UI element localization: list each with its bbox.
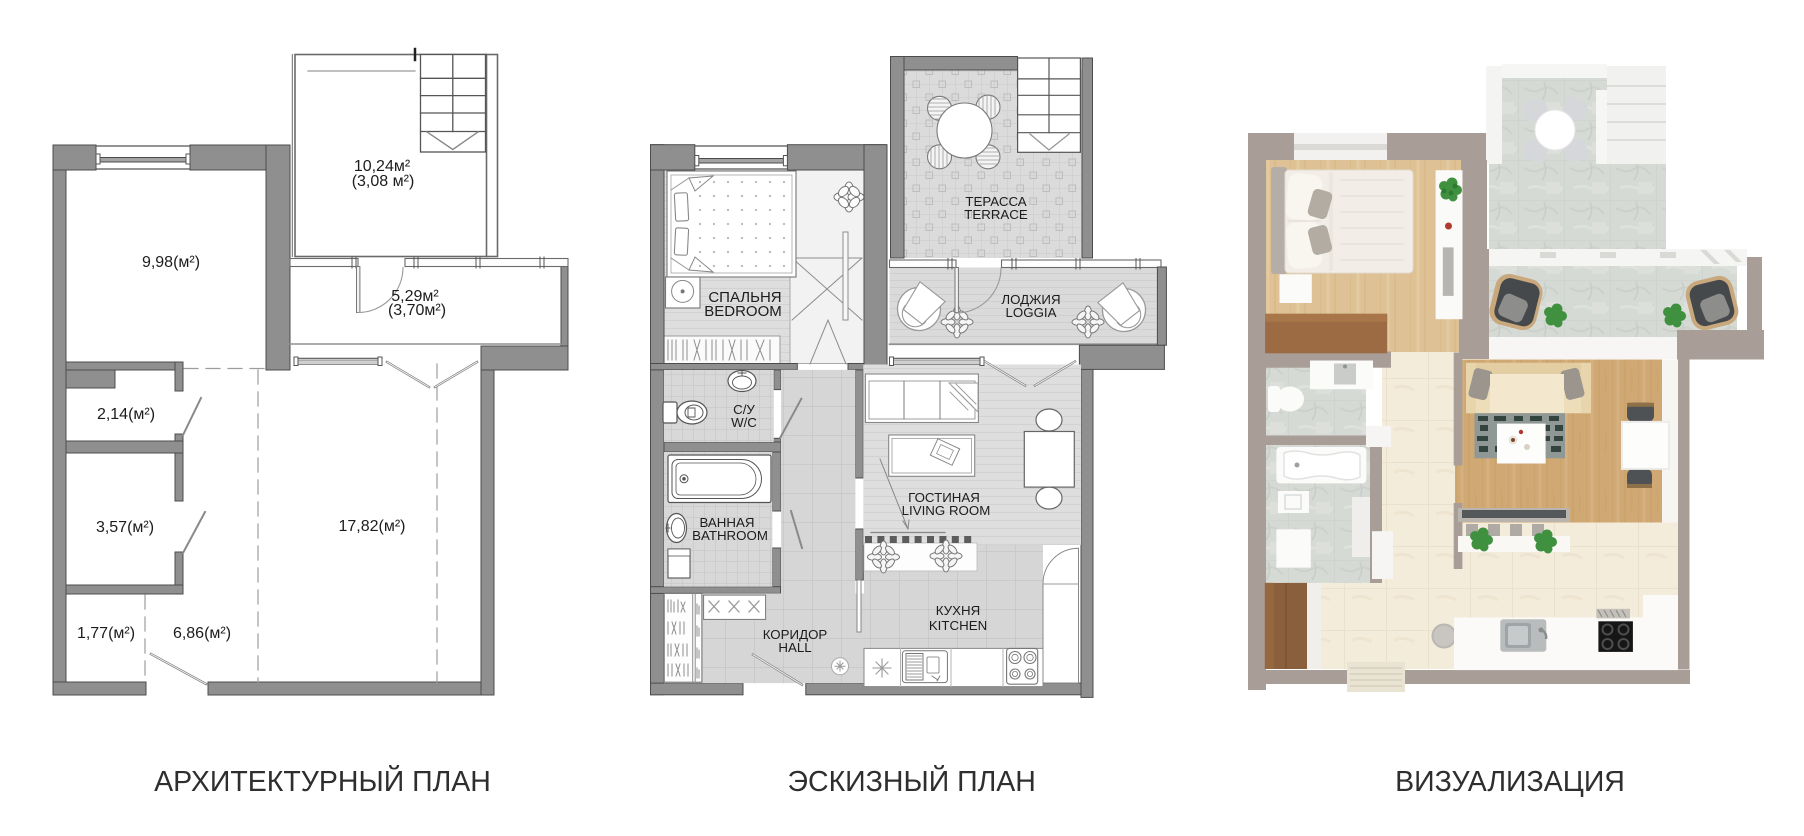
svg-text:17,82(м²): 17,82(м²) bbox=[338, 518, 405, 535]
svg-text:9,98(м²): 9,98(м²) bbox=[142, 254, 200, 271]
svg-text:TERRACE: TERRACE bbox=[964, 207, 1028, 222]
svg-text:6,86(м²): 6,86(м²) bbox=[173, 625, 231, 642]
svg-text:1,77(м²): 1,77(м²) bbox=[77, 625, 135, 642]
svg-text:W/C: W/C bbox=[731, 415, 757, 430]
svg-text:KITCHEN: KITCHEN bbox=[929, 618, 987, 633]
svg-text:АРХИТЕКТУРНЫЙ ПЛАН: АРХИТЕКТУРНЫЙ ПЛАН bbox=[154, 766, 491, 798]
svg-text:HALL: HALL bbox=[778, 640, 811, 655]
svg-text:ЭСКИЗНЫЙ ПЛАН: ЭСКИЗНЫЙ ПЛАН bbox=[788, 766, 1036, 798]
svg-text:ВИЗУАЛИЗАЦИЯ: ВИЗУАЛИЗАЦИЯ bbox=[1395, 766, 1625, 798]
svg-text:(3,70м²): (3,70м²) bbox=[388, 302, 446, 319]
svg-text:LIVING ROOM: LIVING ROOM bbox=[902, 503, 991, 518]
svg-text:3,57(м²): 3,57(м²) bbox=[96, 519, 154, 536]
svg-text:LOGGIA: LOGGIA bbox=[1006, 305, 1057, 320]
svg-text:BEDROOM: BEDROOM bbox=[704, 303, 782, 320]
svg-text:BATHROOM: BATHROOM bbox=[692, 528, 768, 543]
svg-text:КУХНЯ: КУХНЯ bbox=[936, 603, 980, 618]
svg-text:2,14(м²): 2,14(м²) bbox=[97, 406, 155, 423]
svg-text:(3,08 м²): (3,08 м²) bbox=[352, 173, 415, 190]
